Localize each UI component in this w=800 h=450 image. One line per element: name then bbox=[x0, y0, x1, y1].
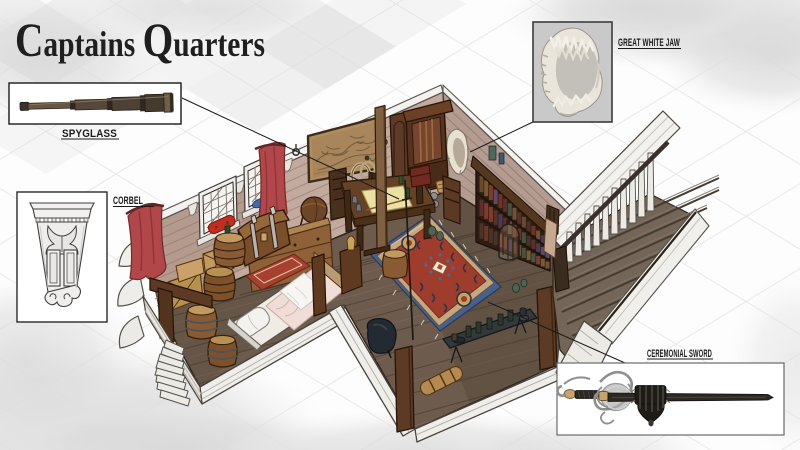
svg-text:GREAT WHITE JAW: GREAT WHITE JAW bbox=[618, 37, 680, 49]
svg-text:SPYGLASS: SPYGLASS bbox=[62, 128, 117, 140]
svg-text:CORBEL: CORBEL bbox=[113, 195, 143, 207]
svg-text:CEREMONIAL SWORD: CEREMONIAL SWORD bbox=[647, 348, 712, 360]
